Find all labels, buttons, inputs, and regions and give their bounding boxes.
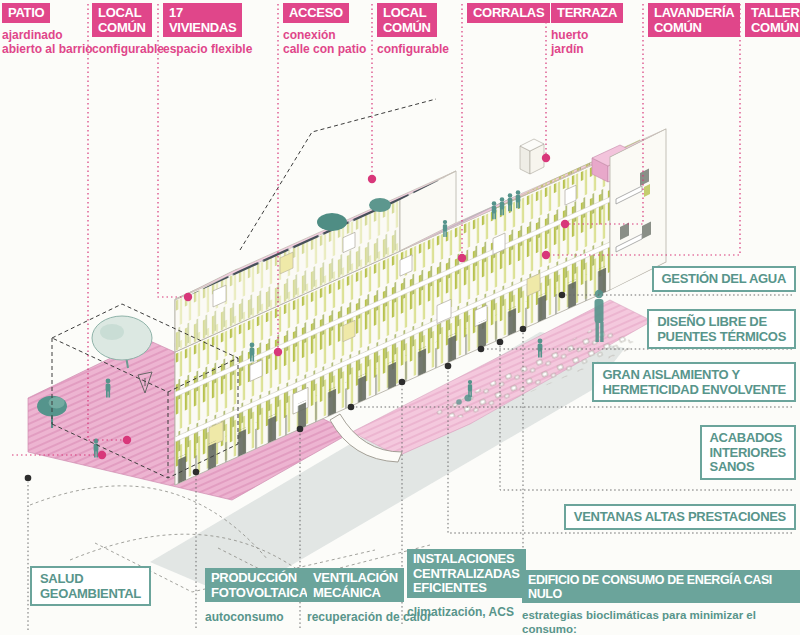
label-local-comun-1: LOCAL COMÚN configurable (92, 3, 164, 57)
label-corralas: CORRALAS (467, 3, 550, 23)
roof-tree (369, 198, 391, 212)
label-lavanderia-title: LAVANDERÍA COMÚN (648, 3, 740, 37)
label-local-comun-2-title: LOCAL COMÚN (377, 3, 437, 37)
label-local-comun-2: LOCAL COMÚN configurable (377, 3, 449, 57)
roof-chimney (520, 139, 544, 174)
label-taller-title: TALLER COMÚN (745, 3, 800, 37)
label-terraza-subtitle: huerto jardín (551, 28, 623, 57)
label-viviendas: 17 VIVIENDAS espacio flexible (163, 3, 252, 57)
label-viviendas-subtitle: espacio flexible (163, 42, 252, 57)
label-acceso: ACCESO conexión calle con patio (283, 3, 366, 57)
label-local-comun-2-subtitle: configurable (377, 42, 449, 57)
label-gran-aislamiento: GRAN AISLAMIENTO Y HERMETICIDAD ENVOLVEN… (592, 362, 796, 402)
label-salud-geoambiental: SALUD GEOAMBIENTAL (30, 566, 151, 606)
label-patio-subtitle: ajardinado abierto al barrio (2, 28, 93, 57)
roof-tree (317, 213, 347, 231)
label-edificio-consumo-casi-nulo: EDIFICIO DE CONSUMO DE ENERGÍA CASI NULO… (522, 570, 800, 635)
label-gestion-agua: GESTIÓN DEL AGUA (652, 266, 797, 292)
label-viviendas-title: 17 VIVIENDAS (163, 3, 242, 37)
label-taller: TALLER COMÚN (745, 3, 800, 37)
label-acceso-title: ACCESO (283, 3, 349, 23)
label-acceso-subtitle: conexión calle con patio (283, 28, 366, 57)
label-terraza-title: TERRAZA (551, 3, 623, 23)
label-ventanas: VENTANAS ALTAS PRESTACIONES (564, 504, 796, 530)
label-corralas-title: CORRALAS (467, 3, 550, 23)
label-local-comun-1-subtitle: configurable (92, 42, 164, 57)
label-acabados-sanos: ACABADOS INTERIORES SANOS (700, 425, 796, 480)
label-diseno-libre: DISEÑO LIBRE DE PUENTES TÉRMICOS (647, 309, 796, 349)
label-produccion-fotovoltaica: PRODUCCIÓN FOTOVOLTAICA autoconsumo (205, 568, 314, 625)
infographic-page: { "title": "Diagrama axonométrico de edi… (0, 0, 800, 635)
label-local-comun-1-title: LOCAL COMÚN (92, 3, 152, 37)
label-instalaciones-centralizadas: INSTALACIONES CENTRALIZADAS EFICIENTES c… (407, 549, 526, 619)
label-patio: PATIO ajardinado abierto al barrio (2, 3, 93, 57)
label-patio-title: PATIO (2, 3, 50, 23)
label-terraza: TERRAZA huerto jardín (551, 3, 623, 57)
label-lavanderia: LAVANDERÍA COMÚN (648, 3, 740, 37)
